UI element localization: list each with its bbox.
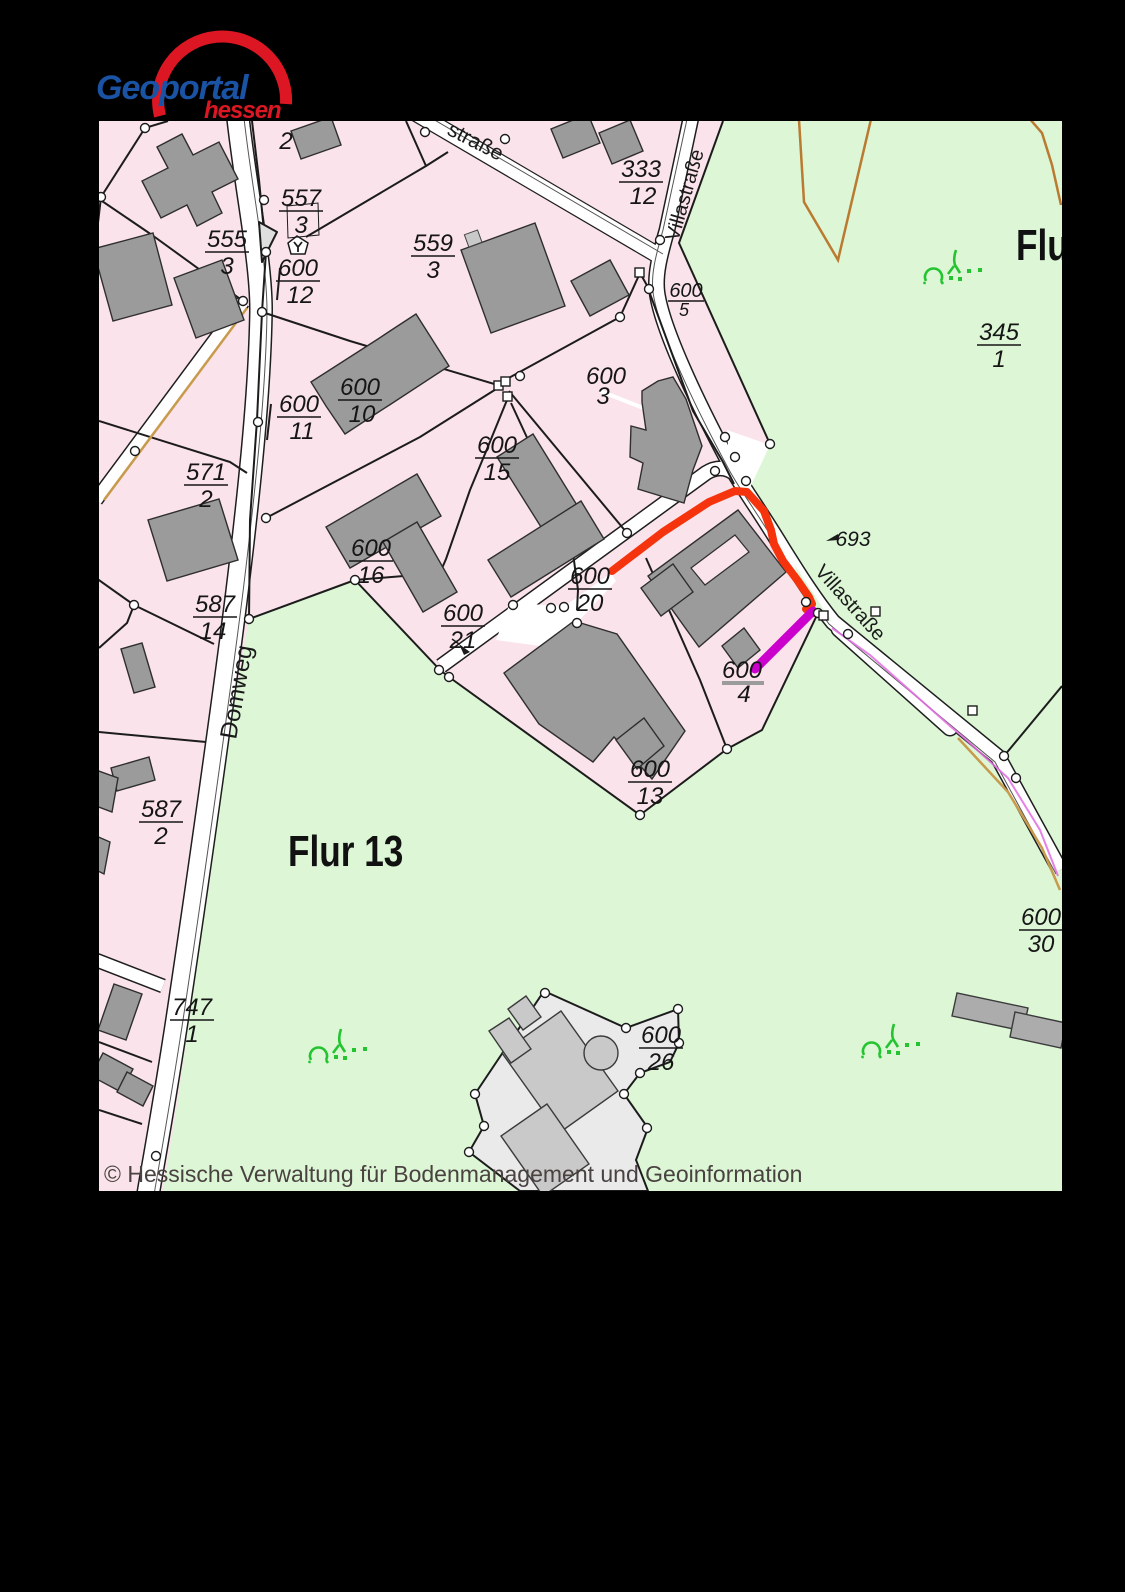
svg-text:600: 600: [443, 600, 484, 627]
svg-text:600: 600: [630, 756, 671, 783]
svg-text:600: 600: [641, 1022, 682, 1049]
svg-text:3: 3: [596, 383, 610, 410]
svg-text:12: 12: [630, 183, 657, 210]
svg-text:600: 600: [477, 432, 518, 459]
svg-text:3: 3: [294, 212, 308, 239]
svg-text:hessen: hessen: [204, 97, 281, 124]
svg-text:16: 16: [358, 562, 385, 589]
svg-text:333: 333: [621, 156, 662, 183]
svg-text:600: 600: [278, 255, 319, 282]
svg-text:10: 10: [349, 401, 376, 428]
svg-text:3: 3: [426, 257, 440, 284]
svg-text:2: 2: [198, 486, 212, 513]
svg-text:Flur 13: Flur 13: [288, 827, 403, 876]
svg-text:559: 559: [413, 230, 453, 257]
svg-text:747: 747: [172, 994, 214, 1021]
svg-text:600: 600: [279, 391, 320, 418]
svg-text:587: 587: [141, 796, 183, 823]
svg-text:557: 557: [281, 185, 323, 212]
svg-text:20: 20: [576, 590, 604, 617]
svg-text:15: 15: [484, 459, 511, 486]
svg-text:600: 600: [722, 657, 763, 684]
svg-text:1: 1: [992, 346, 1005, 373]
svg-text:30: 30: [1028, 931, 1055, 958]
svg-text:12: 12: [287, 282, 314, 309]
svg-text:600: 600: [669, 280, 702, 302]
svg-text:2: 2: [278, 128, 292, 155]
svg-text:600: 600: [340, 374, 381, 401]
svg-text:2: 2: [153, 823, 167, 850]
svg-text:5: 5: [679, 300, 690, 320]
svg-text:14: 14: [200, 618, 227, 645]
svg-text:693: 693: [835, 528, 870, 551]
svg-text:555: 555: [207, 226, 248, 253]
svg-text:600: 600: [570, 563, 611, 590]
svg-text:11: 11: [290, 418, 315, 445]
svg-text:600: 600: [351, 535, 392, 562]
svg-text:3: 3: [220, 253, 234, 280]
svg-text:4: 4: [737, 681, 750, 708]
svg-text:© Hessische Verwaltung für Bod: © Hessische Verwaltung für Bodenmanageme…: [104, 1161, 802, 1187]
svg-text:571: 571: [186, 459, 226, 486]
svg-text:1: 1: [185, 1021, 198, 1048]
svg-text:Flur: Flur: [1016, 221, 1082, 270]
svg-text:600: 600: [1021, 904, 1062, 931]
svg-text:21: 21: [449, 627, 477, 654]
svg-text:345: 345: [979, 319, 1020, 346]
svg-text:587: 587: [195, 591, 237, 618]
svg-text:26: 26: [647, 1049, 675, 1076]
svg-text:13: 13: [637, 783, 664, 810]
